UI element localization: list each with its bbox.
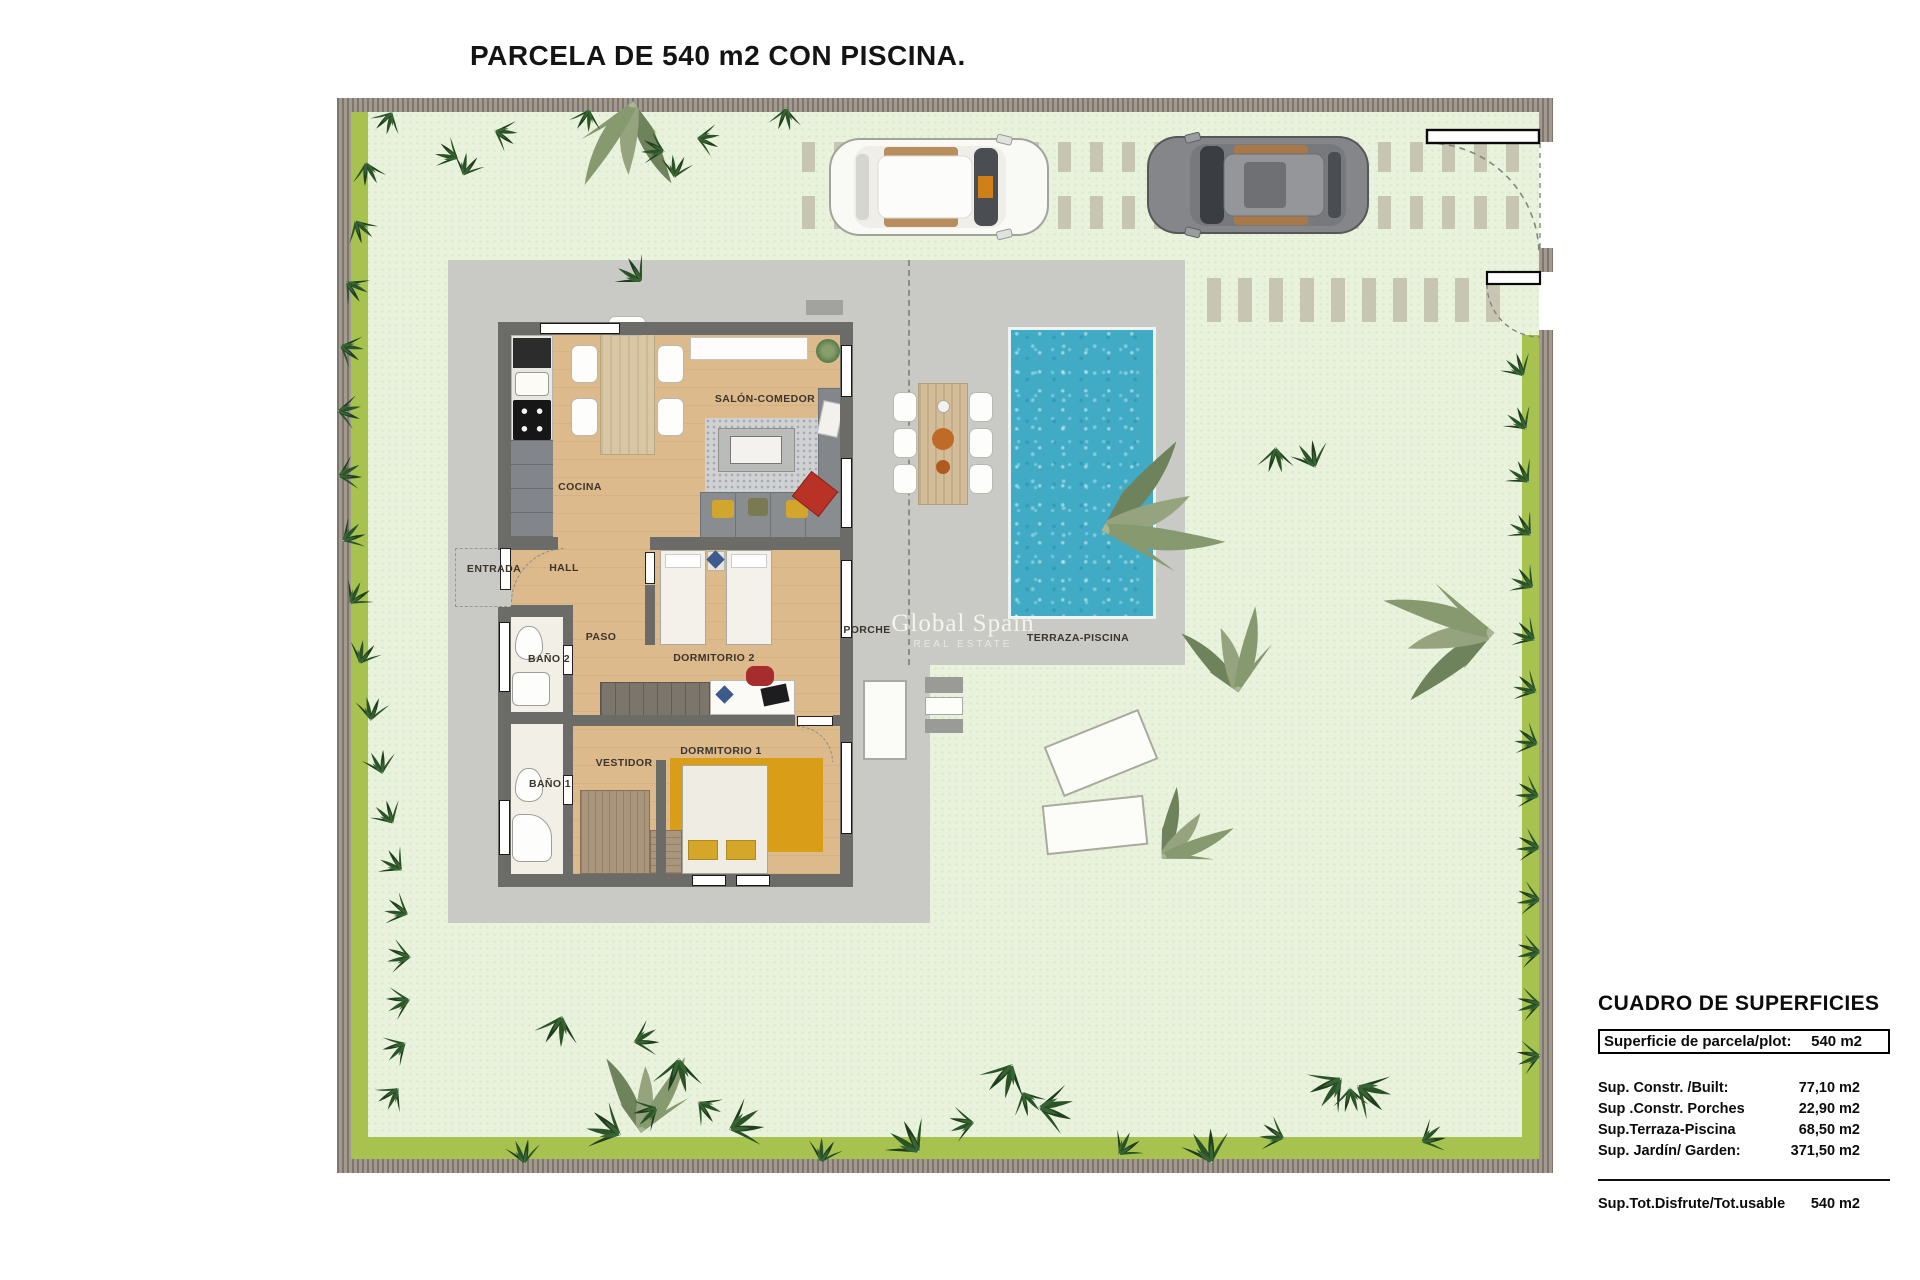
driveway-stripe xyxy=(1058,196,1071,229)
room-label-porche: PORCHE xyxy=(843,624,890,636)
sofa-pillow-yellow xyxy=(712,500,734,518)
hedge-tree-icon xyxy=(346,548,402,604)
door xyxy=(797,716,833,726)
bed-pillow xyxy=(665,554,701,568)
wall-living-bedroom xyxy=(650,537,853,550)
window xyxy=(692,875,726,886)
wall-dorm-separator-stub xyxy=(833,715,853,726)
hedge-tree-icon xyxy=(1477,483,1531,537)
summary-header-value: 540 m2 xyxy=(1811,1033,1862,1050)
washbasin xyxy=(512,672,550,706)
chair xyxy=(571,398,598,436)
row-value: 22,90 m2 xyxy=(1799,1099,1860,1120)
outdoor-chair xyxy=(893,464,917,494)
table-row: Sup. Jardín/ Garden:371,50 m2 xyxy=(1598,1141,1860,1162)
hedge-tree-icon xyxy=(1473,589,1535,651)
driveway-stripe xyxy=(802,196,815,229)
tv-screen xyxy=(730,436,782,464)
outdoor-chair xyxy=(893,428,917,458)
window xyxy=(841,742,852,834)
bed-pillow-yellow xyxy=(688,840,718,860)
driveway-stripe xyxy=(1331,278,1345,322)
desk-chair-red xyxy=(746,666,774,686)
sink xyxy=(515,372,549,396)
grey-car xyxy=(1146,132,1370,238)
row-value: 371,50 m2 xyxy=(1791,1141,1860,1162)
outdoor-chair xyxy=(969,428,993,458)
entrance-gates xyxy=(1380,115,1570,375)
driveway-stripe xyxy=(1090,142,1103,172)
driveway-stripe xyxy=(1090,196,1103,229)
summary-table: CUADRO DE SUPERFICIES Superficie de parc… xyxy=(1598,992,1890,1212)
window xyxy=(499,622,510,692)
outdoor-chair xyxy=(969,392,993,422)
window xyxy=(736,875,770,886)
table-decor xyxy=(937,400,950,413)
closet xyxy=(650,830,682,874)
chair xyxy=(657,398,684,436)
table-decor-orange xyxy=(932,428,954,450)
hedge-tree-icon xyxy=(1475,371,1534,430)
room-label-bano2: BAÑO 2 xyxy=(528,653,570,665)
outdoor-sofa xyxy=(863,680,907,760)
summary-header-row: Superficie de parcela/plot: 540 m2 xyxy=(1598,1029,1890,1054)
hedge-tree-icon xyxy=(582,222,642,282)
page-title: PARCELA DE 540 m2 CON PISCINA. xyxy=(470,40,966,72)
wall-dorm-separator xyxy=(573,715,795,726)
pedestrian-gate xyxy=(1487,272,1540,284)
sun-lounger xyxy=(1042,795,1149,855)
white-car xyxy=(828,134,1050,240)
porch-divider-line xyxy=(908,260,910,665)
wall-bath-column xyxy=(563,805,573,874)
gate-swing-arc xyxy=(1487,284,1540,337)
summary-total-row: Sup.Tot.Disfrute/Tot.usable 540 m2 xyxy=(1598,1196,1890,1212)
room-label-vestidor: VESTIDOR xyxy=(596,757,653,769)
window xyxy=(841,458,852,528)
door xyxy=(645,552,655,584)
room-label-dormitorio1: DORMITORIO 1 xyxy=(680,745,762,757)
wall-bath-top xyxy=(511,605,573,617)
bed-pillow xyxy=(731,554,767,568)
chair xyxy=(657,345,684,383)
window xyxy=(841,345,852,397)
wall-left-upper xyxy=(498,322,511,548)
driveway-stripe xyxy=(1362,278,1376,322)
wall-vestidor xyxy=(656,760,666,874)
wall-bath-column xyxy=(563,675,573,775)
driveway-stripe xyxy=(1207,278,1221,322)
kitchen-cabinets xyxy=(511,440,553,537)
fridge xyxy=(513,338,551,368)
table-row: Sup.Terraza-Piscina68,50 m2 xyxy=(1598,1120,1860,1141)
gate-swing-arc xyxy=(1427,143,1539,255)
summary-total-value: 540 m2 xyxy=(1811,1196,1860,1212)
hedge-tree-icon xyxy=(346,1088,402,1144)
room-label-dormitorio2: DORMITORIO 2 xyxy=(673,652,755,664)
bench-step xyxy=(925,697,963,715)
hedge-tree-icon xyxy=(1477,428,1532,483)
summary-header-label: Superficie de parcela/plot: xyxy=(1604,1033,1792,1050)
palm-tree-icon xyxy=(1162,689,1335,862)
driveway-stripe xyxy=(1058,142,1071,172)
bench-step xyxy=(925,719,963,733)
vehicle-gate xyxy=(1427,130,1539,143)
room-label-bano1: BAÑO 1 xyxy=(529,778,571,790)
room-label-paso: PASO xyxy=(586,631,617,643)
row-label: Sup .Constr. Porches xyxy=(1598,1099,1745,1120)
shower xyxy=(512,814,552,862)
dresser xyxy=(600,682,710,717)
row-value: 77,10 m2 xyxy=(1799,1078,1860,1099)
wall-paso-dorm2 xyxy=(645,585,655,645)
room-label-hall: HALL xyxy=(549,562,579,574)
row-label: Sup. Jardín/ Garden: xyxy=(1598,1141,1741,1162)
cooktop xyxy=(513,400,551,440)
row-value: 68,50 m2 xyxy=(1799,1120,1860,1141)
row-label: Sup. Constr. /Built: xyxy=(1598,1078,1729,1099)
room-label-entrada: ENTRADA xyxy=(467,563,521,575)
terrace-step xyxy=(806,300,843,315)
bed-pillow-yellow xyxy=(726,840,756,860)
summary-divider xyxy=(1598,1179,1890,1181)
room-label-salon: SALÓN-COMEDOR xyxy=(715,393,815,405)
sofa-pillow-olive xyxy=(748,498,768,516)
summary-total-label: Sup.Tot.Disfrute/Tot.usable xyxy=(1598,1196,1785,1212)
driveway-stripe xyxy=(1122,196,1135,229)
outdoor-chair xyxy=(969,464,993,494)
row-label: Sup.Terraza-Piscina xyxy=(1598,1120,1736,1141)
tv-console xyxy=(690,337,808,360)
summary-rows: Sup. Constr. /Built:77,10 m2Sup .Constr.… xyxy=(1598,1078,1890,1162)
hedge-tree-icon xyxy=(346,278,402,334)
driveway-stripe xyxy=(1300,278,1314,322)
bench-step xyxy=(925,677,963,693)
room-label-cocina: COCINA xyxy=(558,481,602,493)
wardrobe xyxy=(580,790,650,874)
hedge-tree-icon xyxy=(346,818,402,874)
hedge-tree-icon xyxy=(1475,536,1533,594)
table-row: Sup .Constr. Porches22,90 m2 xyxy=(1598,1099,1860,1120)
window xyxy=(499,800,510,855)
table-row: Sup. Constr. /Built:77,10 m2 xyxy=(1598,1078,1860,1099)
outdoor-chair xyxy=(893,392,917,422)
driveway-stripe xyxy=(1122,142,1135,172)
wall-bath-mid xyxy=(511,712,573,724)
site-plan-canvas: PARCELA DE 540 m2 CON PISCINA. xyxy=(0,0,1920,1280)
table-decor-orange xyxy=(936,460,950,474)
room-label-terraza: TERRAZA-PISCINA xyxy=(1027,632,1129,644)
plant-icon xyxy=(816,339,840,363)
summary-title: CUADRO DE SUPERFICIES xyxy=(1598,992,1890,1016)
